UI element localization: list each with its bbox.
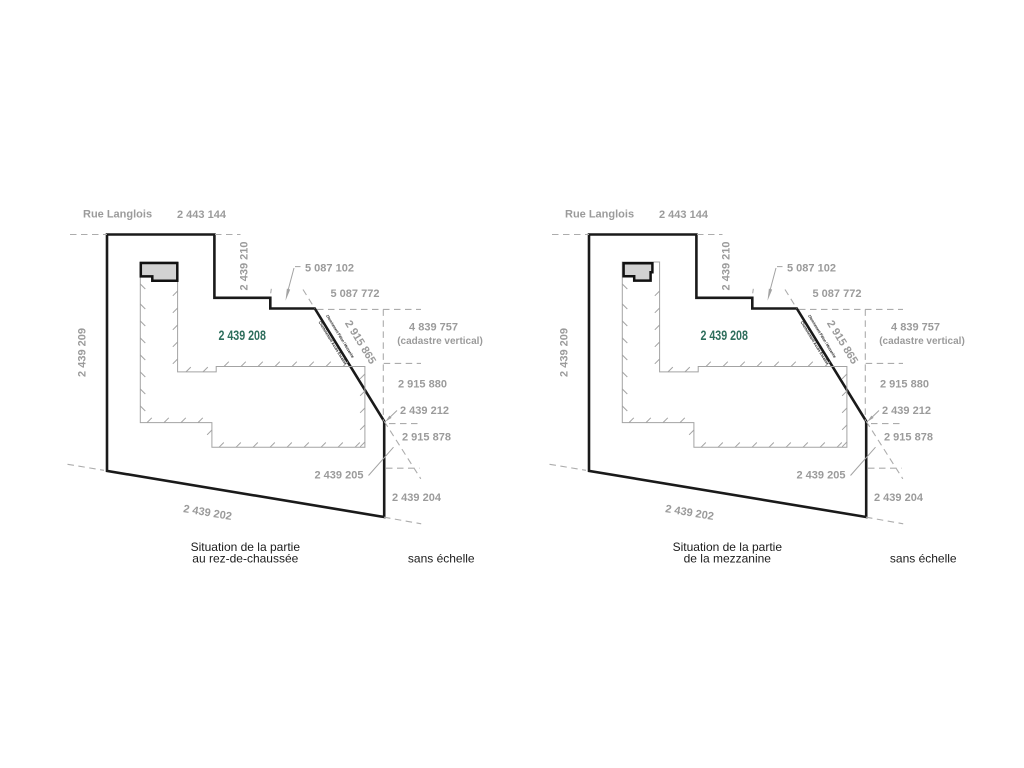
svg-text:sans échelle: sans échelle [890, 552, 957, 566]
svg-text:au rez-de-chaussée: au rez-de-chaussée [192, 552, 298, 566]
svg-text:sans échelle: sans échelle [408, 552, 475, 566]
svg-text:de la mezzanine: de la mezzanine [684, 552, 772, 566]
